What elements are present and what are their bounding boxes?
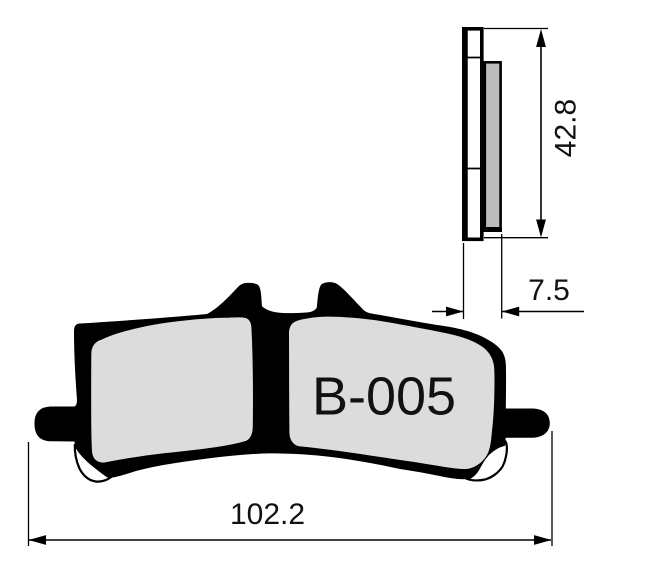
svg-text:102.2: 102.2 xyxy=(230,498,305,531)
svg-text:7.5: 7.5 xyxy=(528,274,570,307)
svg-text:B-005: B-005 xyxy=(312,367,456,427)
svg-text:42.8: 42.8 xyxy=(550,99,583,157)
